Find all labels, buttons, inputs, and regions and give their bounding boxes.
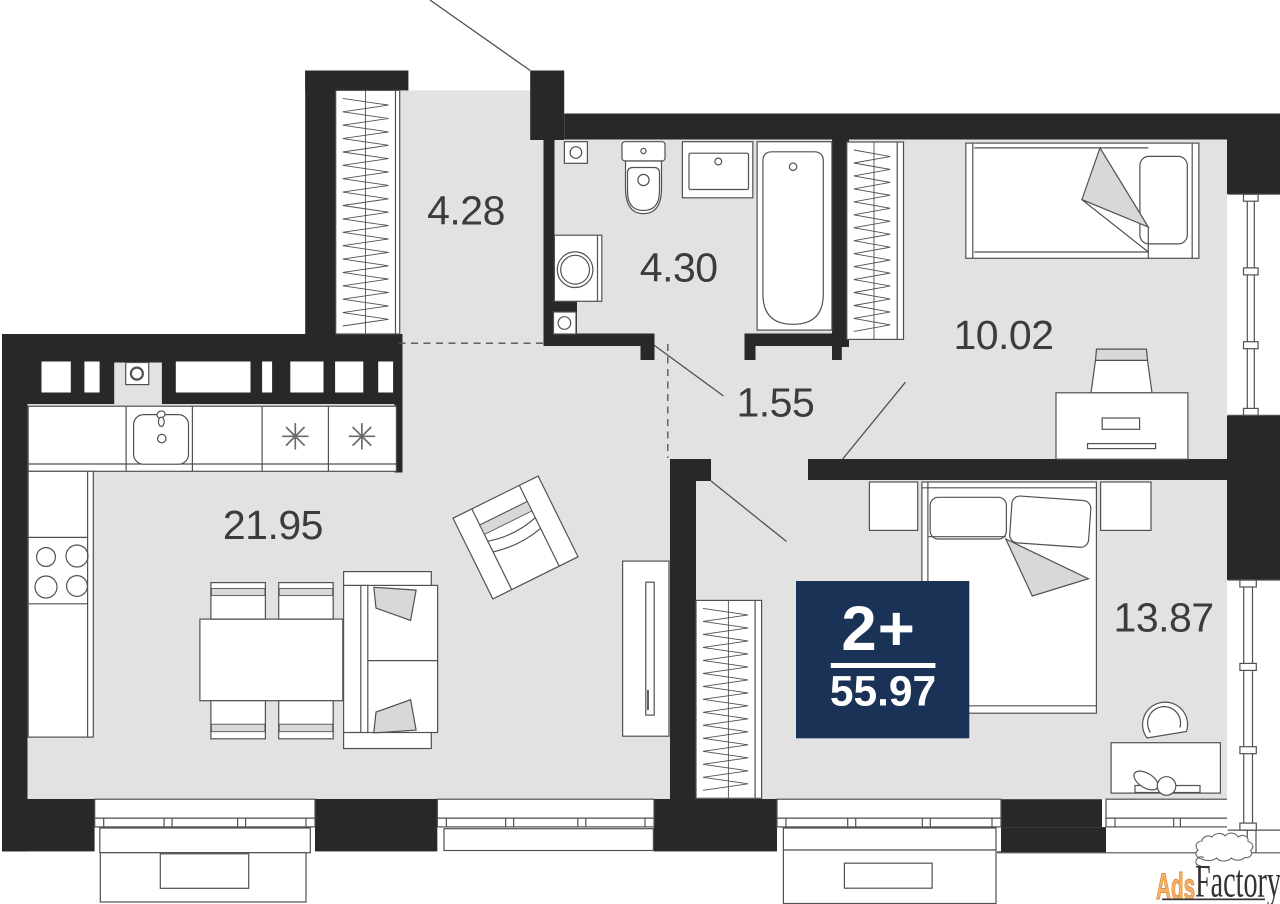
svg-text:10.02: 10.02: [953, 312, 1053, 358]
svg-text:Factory: Factory: [1195, 855, 1280, 904]
svg-text:2+: 2+: [841, 594, 915, 664]
svg-text:13.87: 13.87: [1114, 595, 1214, 641]
svg-text:55.97: 55.97: [830, 669, 936, 716]
svg-text:Ads: Ads: [1156, 867, 1195, 904]
svg-text:4.30: 4.30: [640, 245, 718, 291]
svg-text:1.55: 1.55: [736, 380, 814, 426]
svg-text:21.95: 21.95: [223, 502, 323, 548]
svg-text:4.28: 4.28: [427, 188, 505, 234]
